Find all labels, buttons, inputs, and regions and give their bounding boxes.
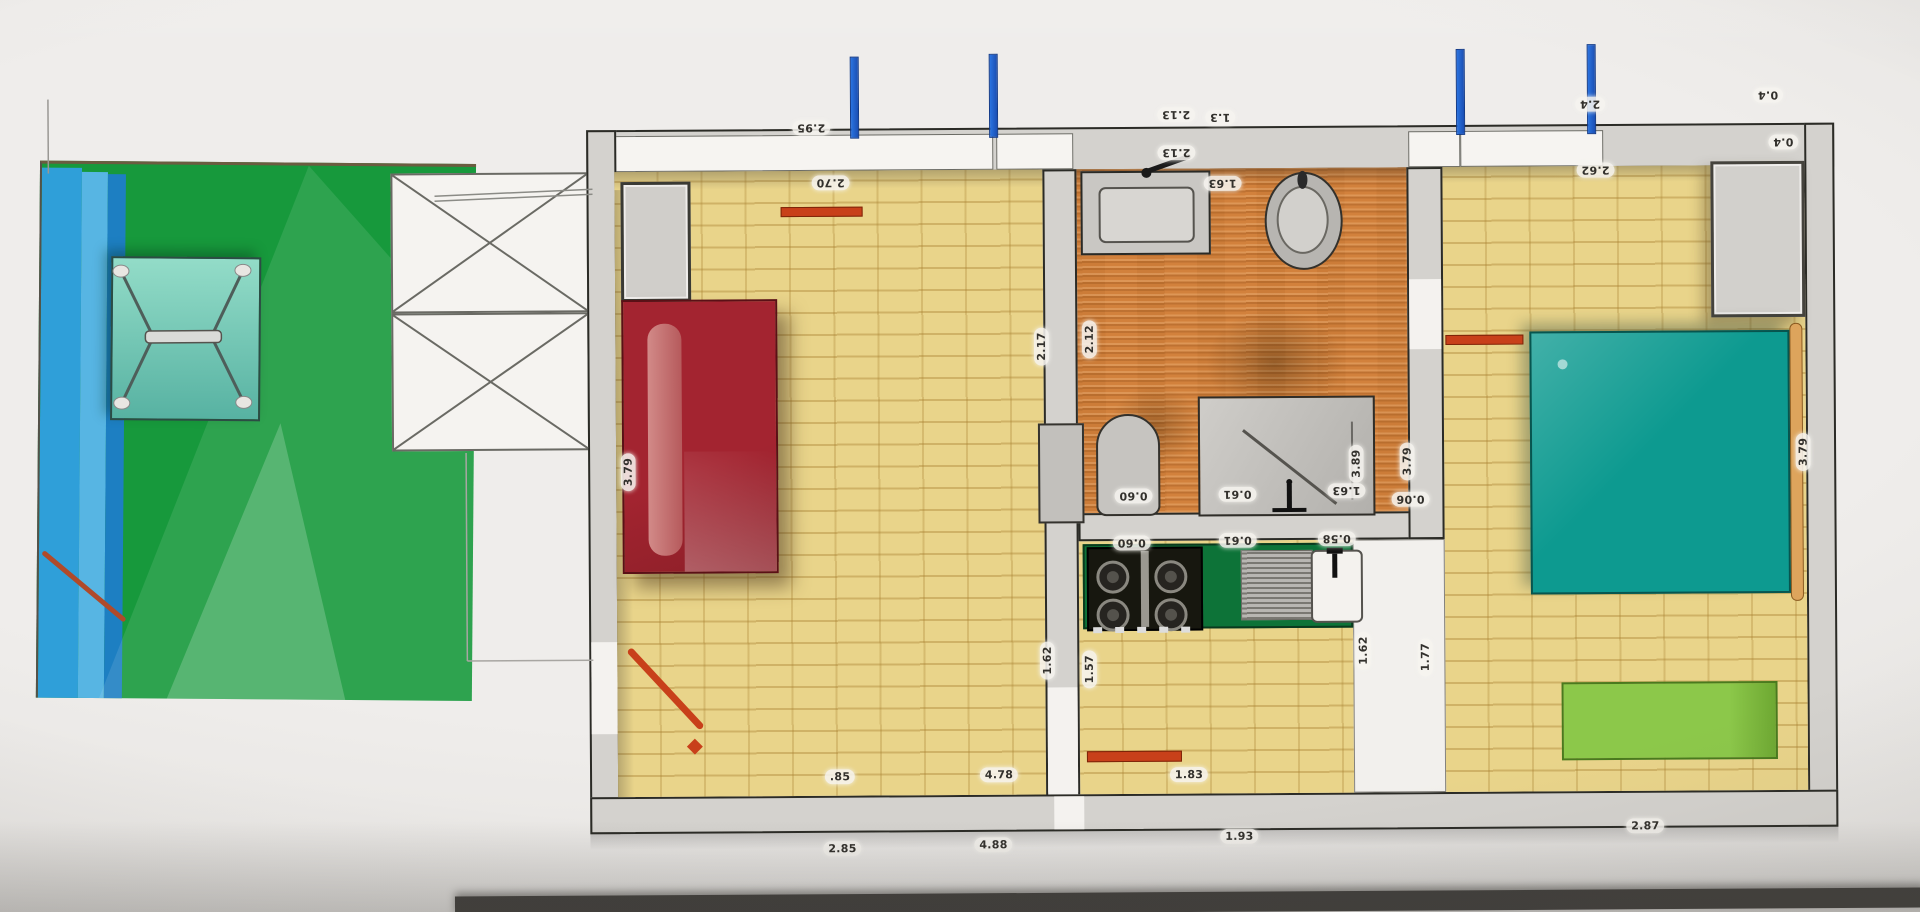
dimension-label: 2.13 [1157,107,1195,122]
dimension-label: 0.4 [1768,134,1798,149]
dimension-label: .85 [825,769,855,784]
dimension-label: 2.4 [1575,97,1605,112]
dimension-label: 3.79 [621,453,636,491]
dimension-label: 1.77 [1418,638,1433,676]
dimension-label: 2.95 [792,120,830,135]
dimension-label: 0.4 [1753,87,1783,102]
dimension-label: 2.12 [1082,320,1097,358]
dimension-label: 1.63 [1327,483,1365,498]
dimension-label: 2.62 [1576,162,1614,177]
dimension-label: 2.85 [823,841,861,856]
dimension-label: 2.87 [1626,818,1664,833]
dimension-label: 1.62 [1356,631,1371,669]
dimension-label: 4.78 [980,767,1018,782]
dimension-label: 1.63 [1203,176,1241,191]
dimension-label: 1.57 [1082,650,1097,688]
dimension-label: 2.70 [811,175,849,190]
plan-tilt-wrapper: 2.952.131.32.40.42.702.131.632.620.43.79… [0,0,1920,912]
dimension-label: 3.79 [1795,433,1810,471]
dimension-label: 2.13 [1157,145,1195,160]
dimension-label: 1.83 [1170,767,1208,782]
dimension-label: 1.93 [1220,829,1258,844]
dimension-label: 4.88 [974,837,1012,852]
dimension-label: 0.06 [1391,492,1429,507]
dimension-label: 0.60 [1114,488,1152,503]
line-overlay [0,0,1920,912]
dimension-label: 3.79 [1400,442,1415,480]
dimension-label: 3.89 [1349,444,1364,482]
dimension-label: 2.17 [1034,327,1049,365]
dimension-label: 1.3 [1205,110,1235,125]
dimension-label: 0.58 [1317,531,1355,546]
dimension-label: 1.62 [1040,641,1055,679]
dimension-label: 0.61 [1218,487,1256,502]
dimension-label: 0.61 [1218,533,1256,548]
floorplan-photo: 2.952.131.32.40.42.702.131.632.620.43.79… [0,0,1920,912]
dimension-label: 0.60 [1112,535,1150,550]
